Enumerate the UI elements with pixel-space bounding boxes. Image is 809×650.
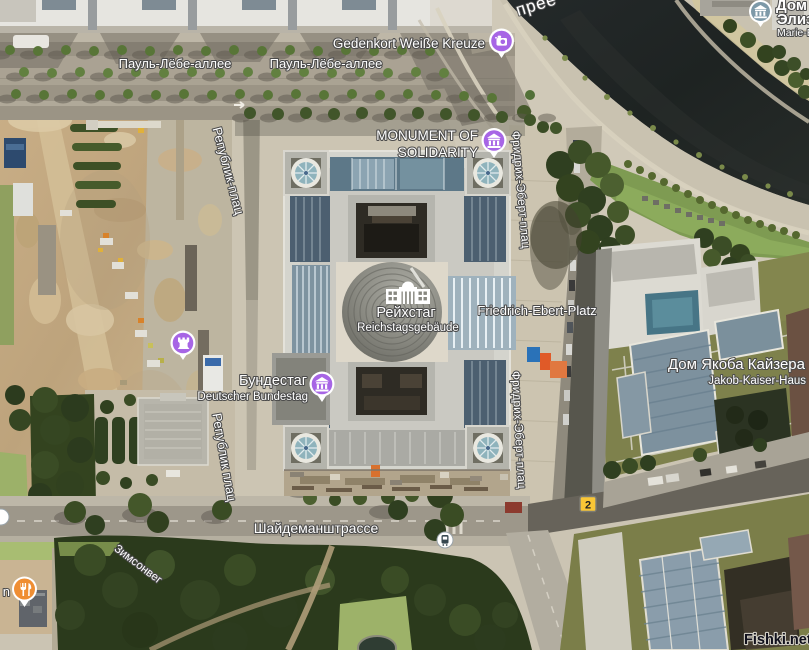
svg-text:Дом Якоба Кайзера: Дом Якоба Кайзера (668, 356, 806, 373)
svg-text:Gedenkort Weiße Kreuze: Gedenkort Weiße Kreuze (333, 36, 485, 51)
svg-text:SOLIDARITY: SOLIDARITY (398, 145, 478, 160)
svg-text:Бундестаг: Бундестаг (239, 373, 307, 389)
svg-text:Шайдеманштрассе: Шайдеманштрассе (254, 520, 379, 536)
svg-text:Пауль-Лёбе-аллее: Пауль-Лёбе-аллее (119, 56, 232, 71)
svg-text:Reichstagsgebäude: Reichstagsgebäude (357, 322, 459, 334)
svg-text:Fishki.net: Fishki.net (744, 632, 809, 648)
svg-text:MONUMENT OF: MONUMENT OF (376, 128, 478, 143)
svg-text:Пауль-Лёбе-аллее: Пауль-Лёбе-аллее (270, 56, 383, 71)
svg-text:Jakob-Kaiser-Haus: Jakob-Kaiser-Haus (708, 375, 806, 387)
svg-text:Deutscher Bundestag: Deutscher Bundestag (197, 391, 308, 403)
svg-text:2: 2 (585, 500, 591, 512)
svg-text:Marie-E: Marie-E (777, 27, 809, 39)
svg-text:Элиз: Элиз (777, 11, 809, 28)
svg-text:Рейхстаг: Рейхстаг (376, 305, 435, 321)
svg-text:n: n (3, 584, 10, 599)
svg-text:Friedrich-Ebert-Platz: Friedrich-Ebert-Platz (477, 303, 596, 318)
